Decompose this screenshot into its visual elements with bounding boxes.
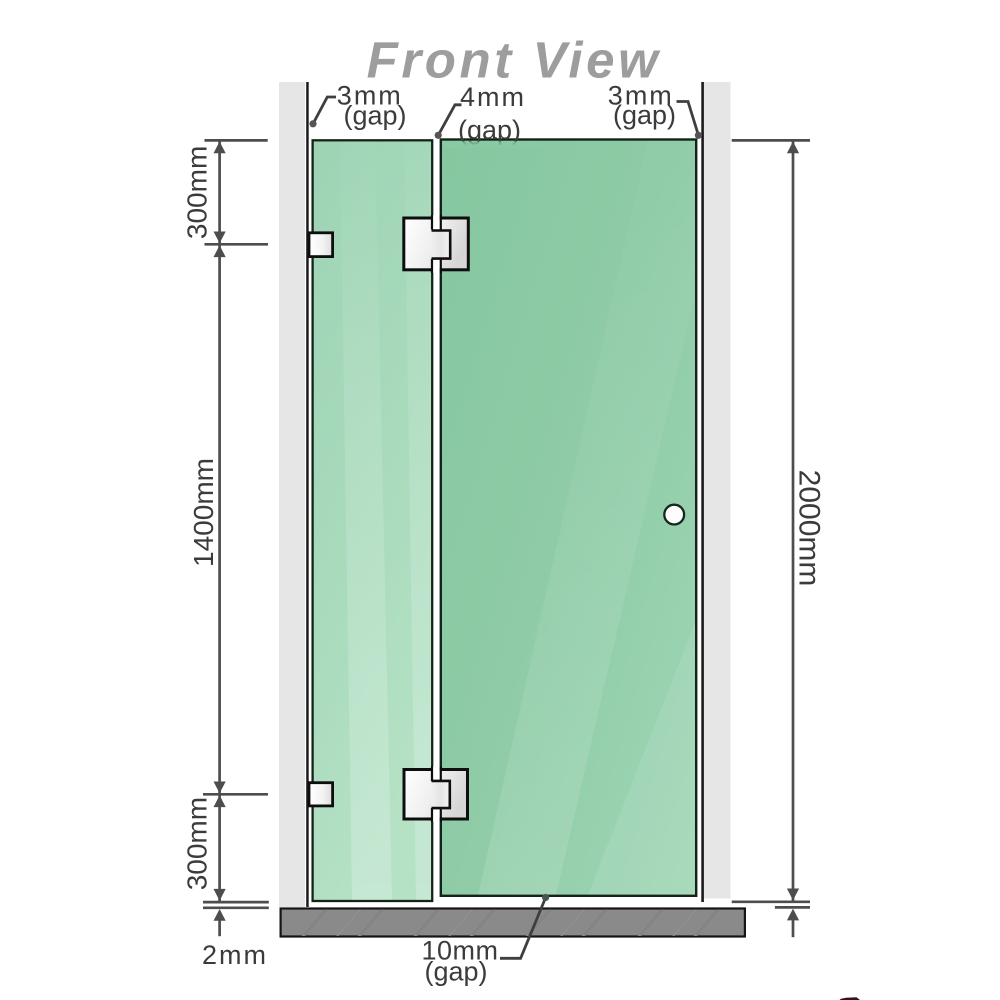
svg-text:(gap): (gap) [613,100,676,130]
svg-text:1400mm: 1400mm [188,458,219,567]
svg-text:2mm: 2mm [202,940,268,970]
svg-text:(gap): (gap) [424,957,487,987]
svg-text:2000mm: 2000mm [793,470,826,587]
svg-text:(gap): (gap) [458,115,521,145]
svg-text:300mm: 300mm [181,146,212,239]
svg-text:300mm: 300mm [182,797,213,890]
svg-text:4mm: 4mm [460,82,526,112]
svg-text:(gap): (gap) [343,100,406,130]
